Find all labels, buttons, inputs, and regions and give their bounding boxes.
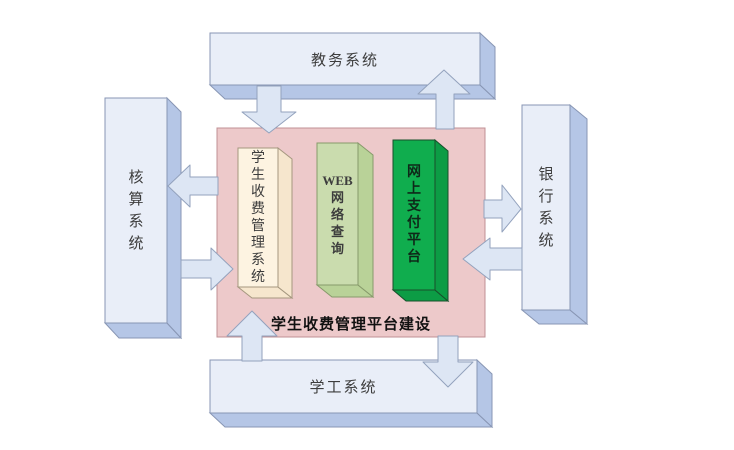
- component1-right-face: [278, 148, 292, 298]
- component-web-query-label: WEB网络查询: [317, 143, 358, 285]
- left-box-right-face: [167, 98, 181, 338]
- component3-right-face: [435, 140, 448, 301]
- bottom-system-label: 学工系统: [210, 360, 477, 413]
- arrow-right-outward-icon: [484, 185, 521, 232]
- right-system-label: 银行系统: [522, 105, 570, 310]
- component2-right-face: [358, 143, 373, 297]
- right-box-right-face: [570, 105, 587, 324]
- architecture-diagram: 教务系统 学工系统 核算系统 银行系统 学生收费管理系统 WEB网络查询 网上支…: [0, 0, 734, 450]
- platform-title: 学生收费管理平台建设: [217, 311, 485, 335]
- top-system-label: 教务系统: [210, 33, 480, 85]
- bottom-box-bottom-face: [210, 413, 492, 427]
- component-fee-system-label: 学生收费管理系统: [238, 148, 278, 287]
- component-online-payment-label: 网上支付平台: [393, 140, 435, 290]
- left-system-label: 核算系统: [105, 98, 167, 323]
